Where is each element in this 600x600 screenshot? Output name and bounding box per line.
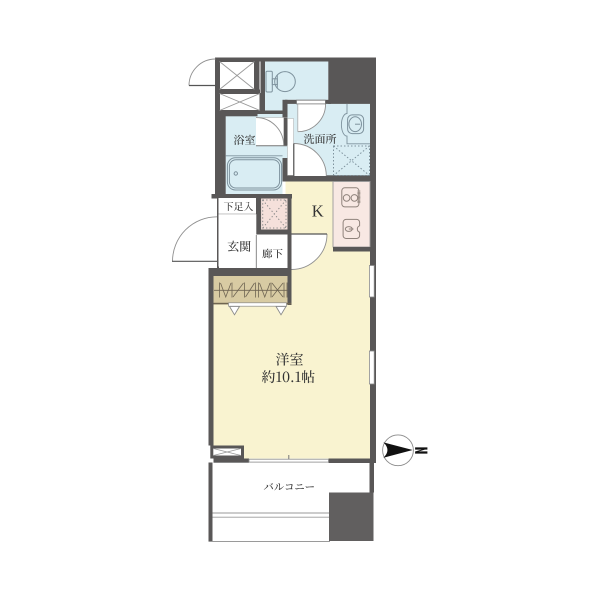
svg-text:K: K [312,201,324,220]
